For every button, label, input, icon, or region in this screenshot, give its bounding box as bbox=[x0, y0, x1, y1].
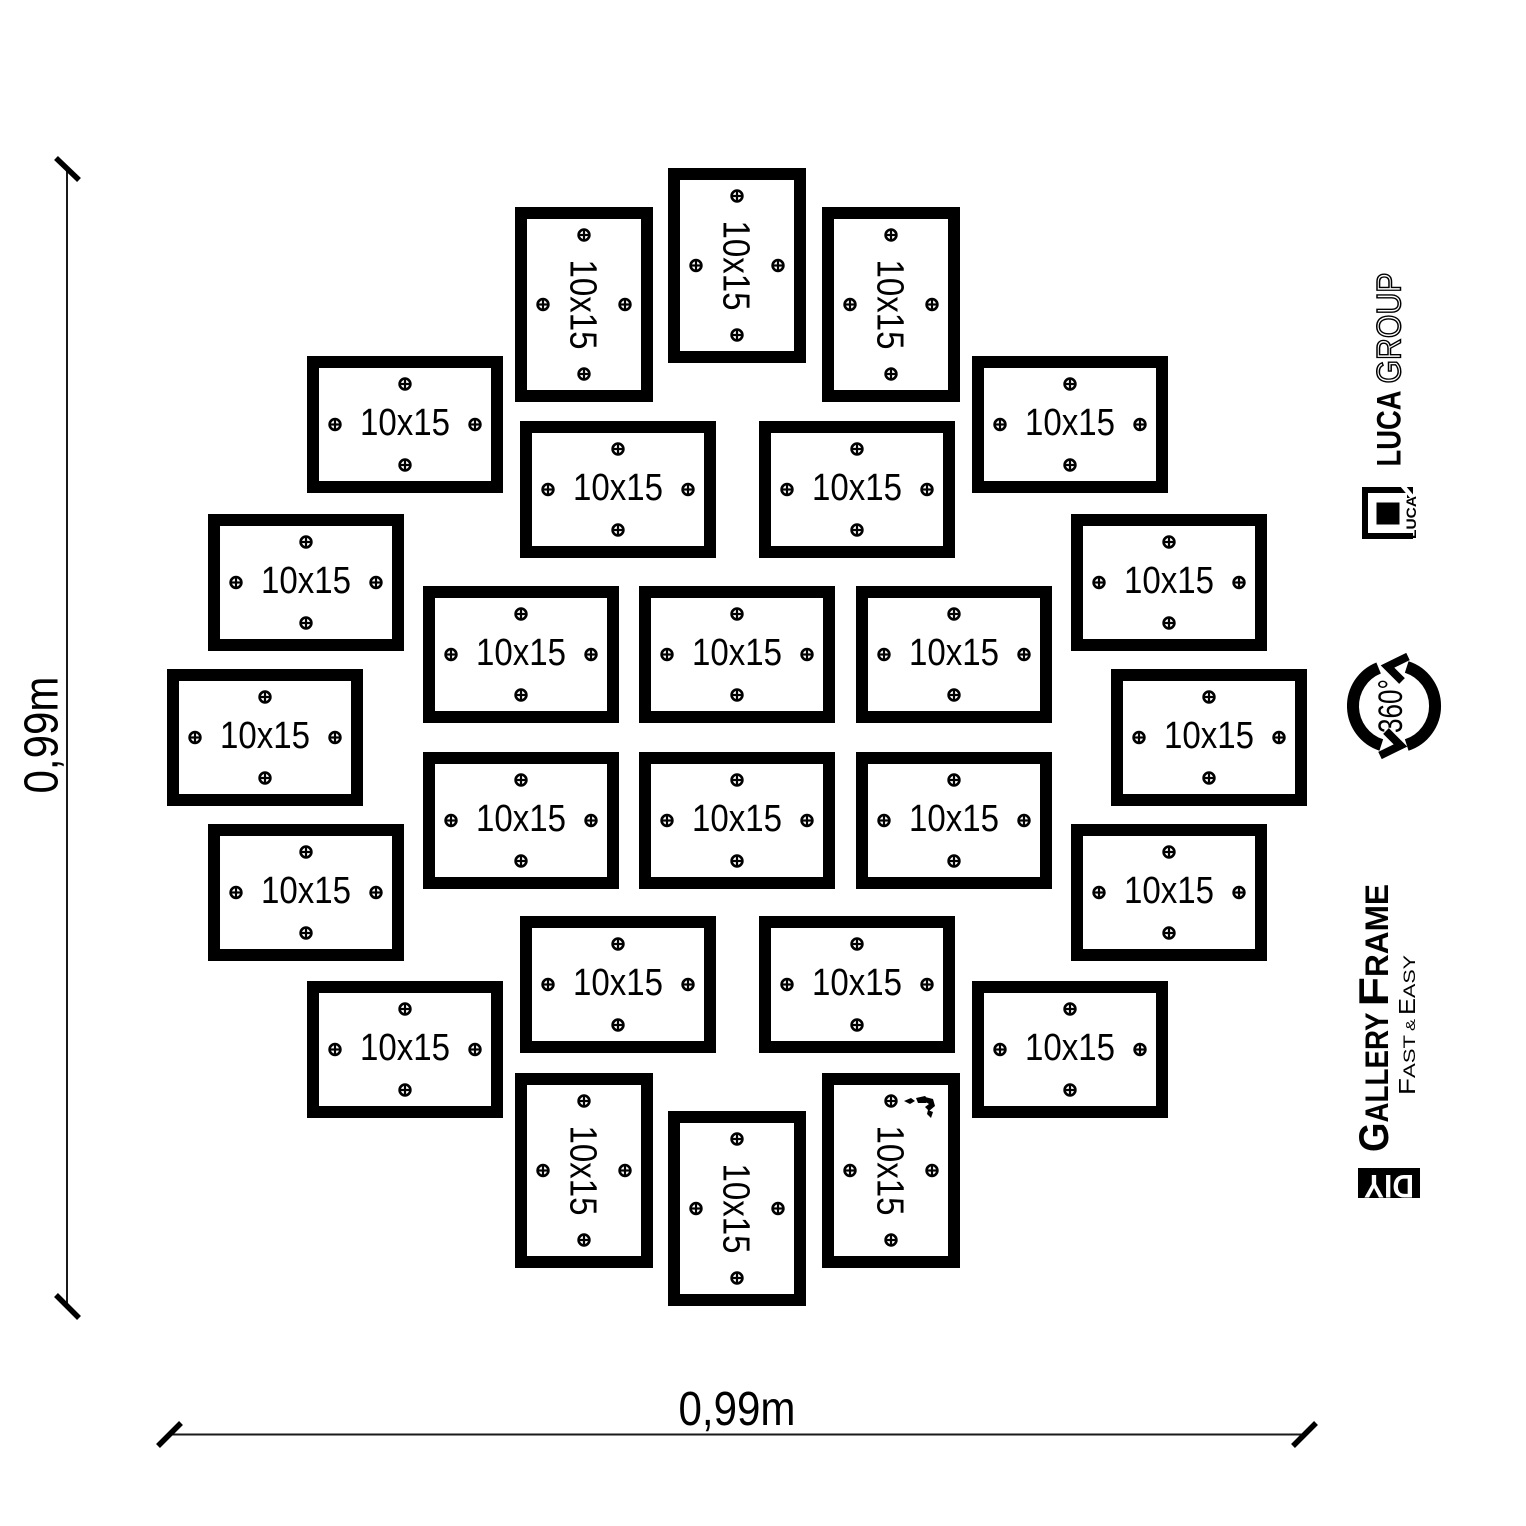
svg-text:10x15: 10x15 bbox=[562, 1126, 604, 1216]
svg-text:LUCA: LUCA bbox=[1404, 496, 1419, 539]
svg-text:0,99m: 0,99m bbox=[16, 677, 69, 794]
svg-text:10x15: 10x15 bbox=[692, 798, 782, 840]
svg-text:10x15: 10x15 bbox=[909, 798, 999, 840]
svg-text:10x15: 10x15 bbox=[1164, 715, 1254, 757]
svg-text:10x15: 10x15 bbox=[562, 260, 604, 350]
svg-text:10x15: 10x15 bbox=[812, 962, 902, 1004]
svg-text:10x15: 10x15 bbox=[869, 1126, 911, 1216]
svg-text:DIY: DIY bbox=[1364, 1168, 1414, 1204]
svg-text:10x15: 10x15 bbox=[909, 632, 999, 674]
svg-text:10x15: 10x15 bbox=[1025, 402, 1115, 444]
svg-text:360°: 360° bbox=[1372, 679, 1410, 733]
svg-text:10x15: 10x15 bbox=[220, 715, 310, 757]
svg-text:10x15: 10x15 bbox=[573, 467, 663, 509]
svg-text:10x15: 10x15 bbox=[1025, 1027, 1115, 1069]
svg-text:10x15: 10x15 bbox=[869, 260, 911, 350]
svg-text:10x15: 10x15 bbox=[360, 402, 450, 444]
svg-text:10x15: 10x15 bbox=[476, 632, 566, 674]
svg-text:10x15: 10x15 bbox=[715, 1164, 757, 1254]
svg-text:10x15: 10x15 bbox=[715, 221, 757, 311]
svg-text:10x15: 10x15 bbox=[261, 870, 351, 912]
svg-text:10x15: 10x15 bbox=[692, 632, 782, 674]
svg-text:10x15: 10x15 bbox=[360, 1027, 450, 1069]
svg-text:10x15: 10x15 bbox=[261, 560, 351, 602]
svg-text:10x15: 10x15 bbox=[812, 467, 902, 509]
svg-text:0,99m: 0,99m bbox=[679, 1383, 796, 1436]
svg-text:10x15: 10x15 bbox=[1124, 870, 1214, 912]
svg-text:10x15: 10x15 bbox=[476, 798, 566, 840]
svg-text:10x15: 10x15 bbox=[573, 962, 663, 1004]
svg-text:LUCAGROUP: LUCAGROUP bbox=[1371, 273, 1409, 467]
svg-text:10x15: 10x15 bbox=[1124, 560, 1214, 602]
